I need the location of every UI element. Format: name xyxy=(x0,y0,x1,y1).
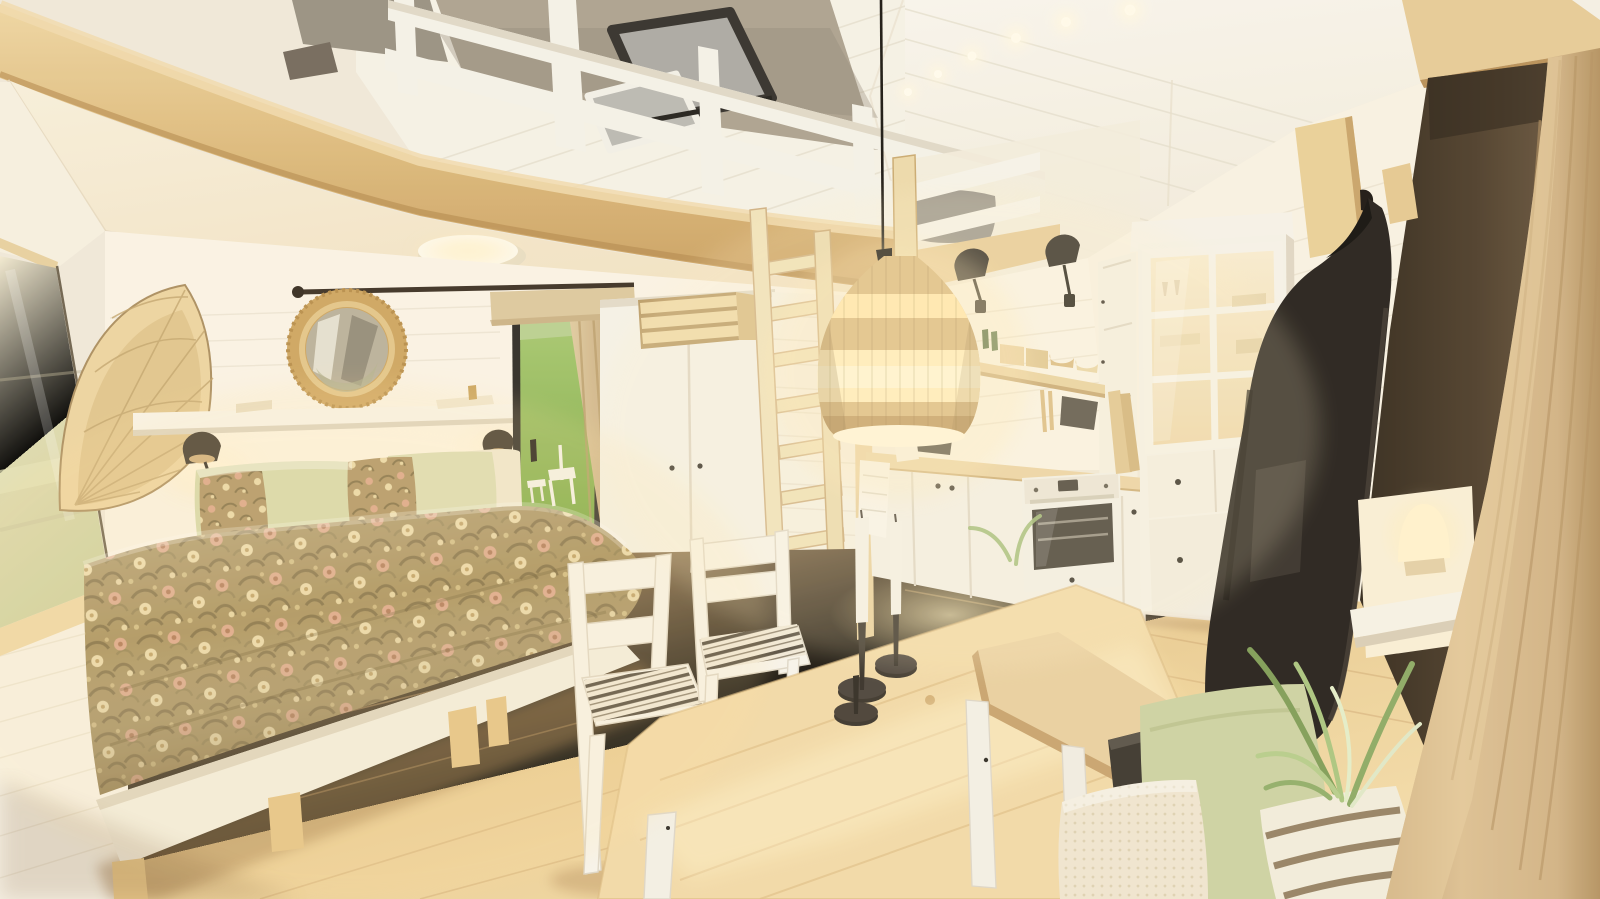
tiny-house-interior-scene xyxy=(0,0,1600,899)
rendered-interior-photo xyxy=(0,0,1600,899)
light-overlays xyxy=(0,0,1600,899)
